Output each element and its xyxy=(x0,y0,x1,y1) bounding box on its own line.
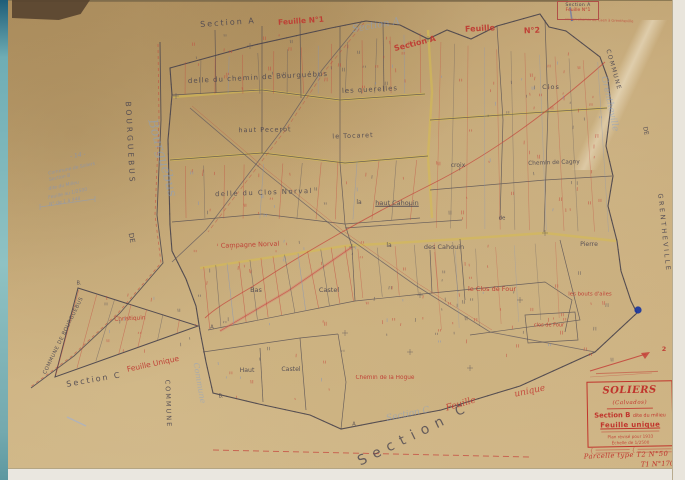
label-arrow-2: 2 xyxy=(662,346,667,353)
scan-edge-bottom xyxy=(8,468,672,480)
label-le-tocaret: le Tocaret xyxy=(332,132,374,140)
label-bas: Bas xyxy=(250,287,262,294)
label-la-2: la xyxy=(386,243,391,249)
label-feuille-red: Feuille xyxy=(465,24,495,34)
scanned-cadastral-map: Section AFeuille N°1Section ASection AFe… xyxy=(0,0,685,480)
label-le-clos-de-four: le Clos de Four xyxy=(468,286,516,293)
label-castel-2: Castel xyxy=(281,367,300,373)
feuille-line: Feuille unique xyxy=(588,420,672,429)
label-point-a1: A xyxy=(210,326,213,331)
title-underline xyxy=(607,408,653,410)
adjacent-sheet-box: Section A Feuille N°1 xyxy=(557,1,599,20)
label-des-cahouin: des Cahouin xyxy=(424,244,464,251)
map-paper: Section AFeuille N°1Section ASection AFe… xyxy=(8,0,672,468)
label-point-a2: A xyxy=(352,423,355,428)
label-haut: Haut xyxy=(240,368,255,374)
label-de-small: de xyxy=(499,216,506,222)
map-title: SOLIERS (Calvados) xyxy=(588,384,672,407)
label-point-b1: B. xyxy=(76,282,81,287)
departement-name: (Calvados) xyxy=(612,400,647,407)
label-feuille-n2-red: N°2 xyxy=(524,27,541,36)
label-point-b2: B. xyxy=(218,395,223,400)
label-castel-1: Castel xyxy=(319,287,339,294)
section-line: Section B dite du milieu xyxy=(588,410,672,419)
map-line-work xyxy=(8,0,672,468)
label-commune-bottom: COMMUNE xyxy=(164,380,172,429)
label-campagne-norval: Campagne Norval xyxy=(221,241,280,250)
scan-edge-strip xyxy=(0,0,8,480)
adjacent-sheet-feuille: Feuille N°1 xyxy=(558,8,598,13)
section-name: Section B xyxy=(594,411,630,420)
label-pierre: Pierre xyxy=(580,242,598,248)
label-la-1: la xyxy=(356,200,361,206)
label-clos: Clos xyxy=(542,84,560,91)
micro-text-line xyxy=(601,430,659,432)
label-chemin-de-la-hogue: Chemin de la Hogue xyxy=(356,376,415,382)
label-de-west: DE xyxy=(127,233,136,244)
label-de-right: DE xyxy=(641,126,649,135)
label-clos-de-four-small: clos de Four xyxy=(534,324,564,329)
commune-name: SOLIERS xyxy=(602,385,656,397)
section-subname: dite du milieu xyxy=(633,413,666,419)
label-les-bouts-d-ailes: les bouts d'ailes xyxy=(568,292,611,297)
scan-edge-right xyxy=(672,0,685,480)
label-croix: croix xyxy=(451,163,466,169)
label-haut-pecerot: haut Pecerot xyxy=(238,126,291,133)
scale-line: Échelle de 1/2500 xyxy=(588,439,672,445)
label-haut-cahouin: haut Cahouin xyxy=(375,200,419,207)
title-block: SOLIERS (Calvados) Section B dite du mil… xyxy=(586,380,673,447)
